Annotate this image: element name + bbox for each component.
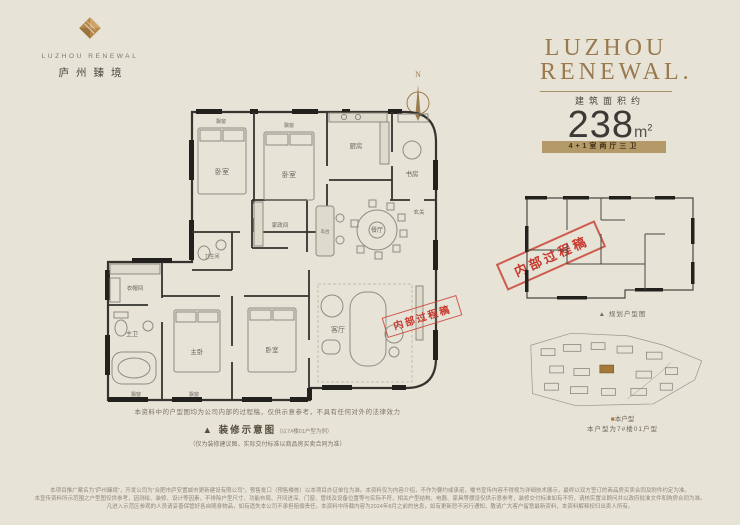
site-boundary <box>531 333 702 406</box>
plan-caption: ▲ 装修示意图（以7#楼01户型为例） <box>95 422 440 436</box>
room-label-island: 岛台 <box>321 228 330 235</box>
room-label-bathroom: 卫生间 <box>204 253 219 260</box>
plan-caption-sub: （以7#楼01户型为例） <box>276 429 332 435</box>
room-label-bedroom-c: 卧室 <box>266 345 280 354</box>
room-label-bay-top-left: 飘窗 <box>216 118 226 125</box>
disclaimer-line3: 凡进入示范区参观的人员请妥善保管好各自随身物品，如有遗失本公司不承担赔偿责任。本… <box>22 503 718 511</box>
area-number: 238 <box>568 104 634 146</box>
plan-caption-text: 装修示意图 <box>219 425 277 436</box>
area-unit: m <box>634 124 647 141</box>
site-legend-label: 本户型 <box>615 416 635 423</box>
disclaimer-line2: 本宣传资料所示范围之户型图仅供参考，因测绘、装修、设计等因素，不排除户型尺寸、功… <box>22 495 718 503</box>
brand-diamond-icon <box>78 16 102 40</box>
plan-notes: 本资料中的户型图均为公司内部的过程稿，仅供示意参考，不具有任何对外的法律效力 ▲… <box>95 406 440 448</box>
site-legend: ■本户型 <box>540 413 705 423</box>
room-label-kitchen: 厨房 <box>350 141 363 150</box>
disclaimer-line1: 本项目推广案名为“庐州臻境”，开发公司为“合肥市庐安置城市更新建设有限公司”，预… <box>22 487 718 495</box>
room-label-hall: 玄关 <box>413 208 425 216</box>
disclaimer: 本项目推广案名为“庐州臻境”，开发公司为“合肥市庐安置城市更新建设有限公司”，预… <box>22 487 718 511</box>
mini-plan-caption: ▲ 规划户型图 <box>540 308 705 318</box>
plan-caption-marker: ▲ <box>203 425 219 436</box>
headline-line1: LUZHOU <box>540 36 672 60</box>
mini-wall-chunks <box>525 196 695 300</box>
compass-north-label: N <box>400 70 436 79</box>
mini-interior-walls <box>527 198 665 290</box>
site-highlighted-building <box>600 365 614 373</box>
plan-note-line2: （仅为装修建议图，实际交付标准以商品房买卖合同为准） <box>95 439 440 448</box>
site-road <box>627 363 670 399</box>
mini-caption-marker: ▲ <box>599 311 609 318</box>
room-label-bedroom-b: 卧室 <box>282 170 296 179</box>
mini-caption-text: 规划户型图 <box>609 311 647 318</box>
room-label-bedroom-a: 卧室 <box>215 167 229 176</box>
main-floorplan: 飘窗 飘窗 卧室 卧室 厨房 书房 卫生间 家政间 岛台 餐厅 玄关 衣帽间 主… <box>92 100 472 410</box>
room-label-study: 书房 <box>406 169 419 178</box>
site-plan <box>512 328 717 410</box>
brand-name-cn: 庐州臻境 <box>28 65 152 80</box>
mini-outer-walls <box>527 198 693 298</box>
poster-canvas: LUZHOU RENEWAL 庐州臻境 N <box>0 0 740 525</box>
headline-line2: RENEWAL. <box>540 60 672 84</box>
room-label-master-bathroom: 主卫 <box>126 330 138 338</box>
mini-floorplan <box>505 190 705 306</box>
room-label-dining: 餐厅 <box>371 226 383 234</box>
layout-badge: 4+1室两厅三卫 <box>542 141 666 153</box>
brand-logo: LUZHOU RENEWAL 庐州臻境 <box>28 16 152 80</box>
room-label-utility: 家政间 <box>272 221 289 229</box>
room-label-bay-bottom-left: 飘窗 <box>131 391 141 398</box>
room-label-master-bedroom: 主卧 <box>191 347 205 356</box>
brand-name-en: LUZHOU RENEWAL <box>28 53 152 60</box>
room-label-bay-top-right: 飘窗 <box>284 122 294 129</box>
room-label-bay-bottom-right: 飘窗 <box>189 391 199 398</box>
area-sup: 2 <box>647 123 652 133</box>
headline: LUZHOU RENEWAL. <box>540 36 672 92</box>
room-label-closet: 衣帽间 <box>127 284 144 292</box>
plan-note-line1: 本资料中的户型图均为公司内部的过程稿，仅供示意参考，不具有任何对外的法律效力 <box>95 406 440 416</box>
site-caption: 本户型为7#楼01户型 <box>540 423 705 433</box>
room-label-living: 客厅 <box>331 325 345 334</box>
